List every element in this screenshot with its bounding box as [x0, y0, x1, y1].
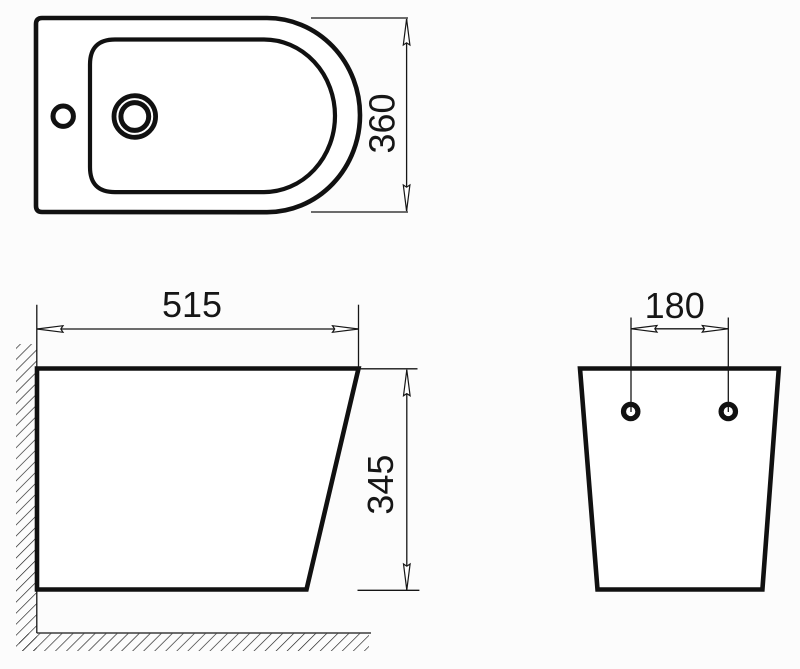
svg-text:180: 180	[645, 285, 705, 326]
svg-text:360: 360	[362, 93, 403, 153]
svg-text:515: 515	[162, 284, 222, 325]
svg-text:345: 345	[360, 455, 401, 515]
